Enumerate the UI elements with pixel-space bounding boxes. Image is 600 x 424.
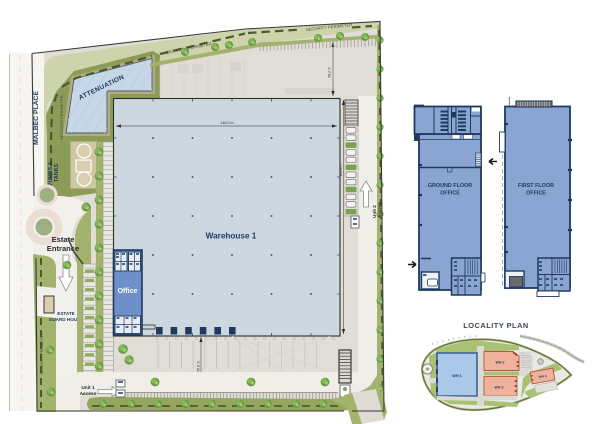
svg-text:GROUND FLOOR: GROUND FLOOR [428, 183, 472, 189]
svg-text:160.8 m: 160.8 m [339, 164, 343, 177]
svg-text:Access: Access [80, 391, 97, 397]
svg-text:SECURITY PERIMETER: SECURITY PERIMETER [59, 95, 64, 140]
svg-text:Unit 1: Unit 1 [81, 385, 95, 391]
svg-text:WH 2: WH 2 [496, 361, 505, 365]
svg-text:LOCALITY PLAN: LOCALITY PLAN [463, 321, 529, 330]
svg-text:OFFICE: OFFICE [440, 191, 460, 197]
svg-text:ESTATE: ESTATE [57, 311, 74, 316]
svg-text:146.0 m: 146.0 m [221, 121, 234, 125]
svg-text:Office: Office [118, 288, 138, 295]
svg-text:Warehouse 1: Warehouse 1 [206, 232, 257, 241]
svg-text:WH 1: WH 1 [452, 374, 462, 378]
svg-text:45.0 m: 45.0 m [197, 361, 201, 372]
svg-text:49.2 m: 49.2 m [328, 67, 332, 78]
svg-text:MALBEC PLACE: MALBEC PLACE [33, 91, 40, 145]
svg-text:WH 3: WH 3 [495, 386, 504, 390]
svg-text:Estate: Estate [52, 235, 75, 244]
svg-text:OFFICE: OFFICE [526, 191, 546, 197]
svg-text:SECURITY PERIMETER: SECURITY PERIMETER [40, 332, 44, 375]
svg-text:PUMPS &TANKS: PUMPS &TANKS [48, 161, 60, 186]
svg-text:FIRST FLOOR: FIRST FLOOR [518, 183, 554, 189]
